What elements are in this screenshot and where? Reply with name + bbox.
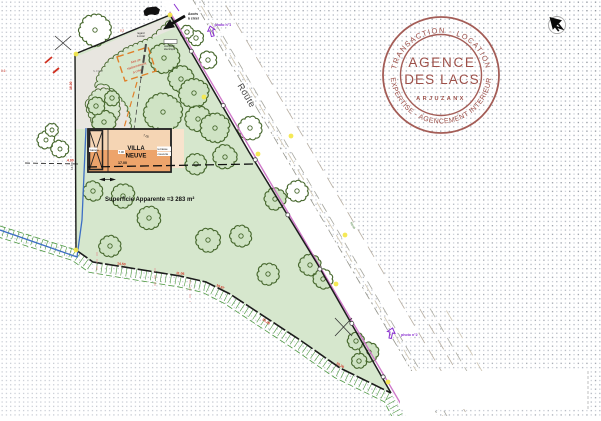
svg-text:4.00: 4.00	[67, 159, 74, 163]
svg-text:0.6: 0.6	[1, 69, 6, 73]
svg-text:0.2: 0.2	[120, 29, 125, 33]
svg-text:Superficie Apparente =3 283 m²: Superficie Apparente =3 283 m²	[105, 196, 194, 203]
svg-text:photo n°1: photo n°1	[215, 23, 232, 27]
svg-text:S.1965: S.1965	[93, 69, 103, 73]
svg-text:16.00: 16.00	[70, 162, 74, 170]
svg-text:Garage: Garage	[90, 148, 100, 152]
svg-text:Accès: Accès	[188, 12, 198, 16]
svg-text:photo n°2: photo n°2	[401, 333, 418, 337]
svg-text:VILLA: VILLA	[127, 146, 145, 152]
svg-text:ARJUZANX: ARJUZANX	[416, 96, 466, 102]
svg-text:16.00: 16.00	[69, 81, 73, 90]
svg-text:électrique: électrique	[164, 47, 176, 51]
svg-text:AGENCE: AGENCE	[408, 55, 475, 70]
svg-text:à créer: à créer	[137, 34, 145, 38]
svg-text:couverte: couverte	[158, 152, 169, 156]
svg-text:à créer: à créer	[188, 17, 200, 21]
svg-text:NEUVE: NEUVE	[126, 154, 147, 160]
svg-text:DES LACS: DES LACS	[404, 72, 480, 87]
svg-text:17.00: 17.00	[118, 161, 127, 165]
svg-text:terrasse: terrasse	[158, 147, 169, 151]
svg-text:7.00: 7.00	[119, 150, 125, 154]
